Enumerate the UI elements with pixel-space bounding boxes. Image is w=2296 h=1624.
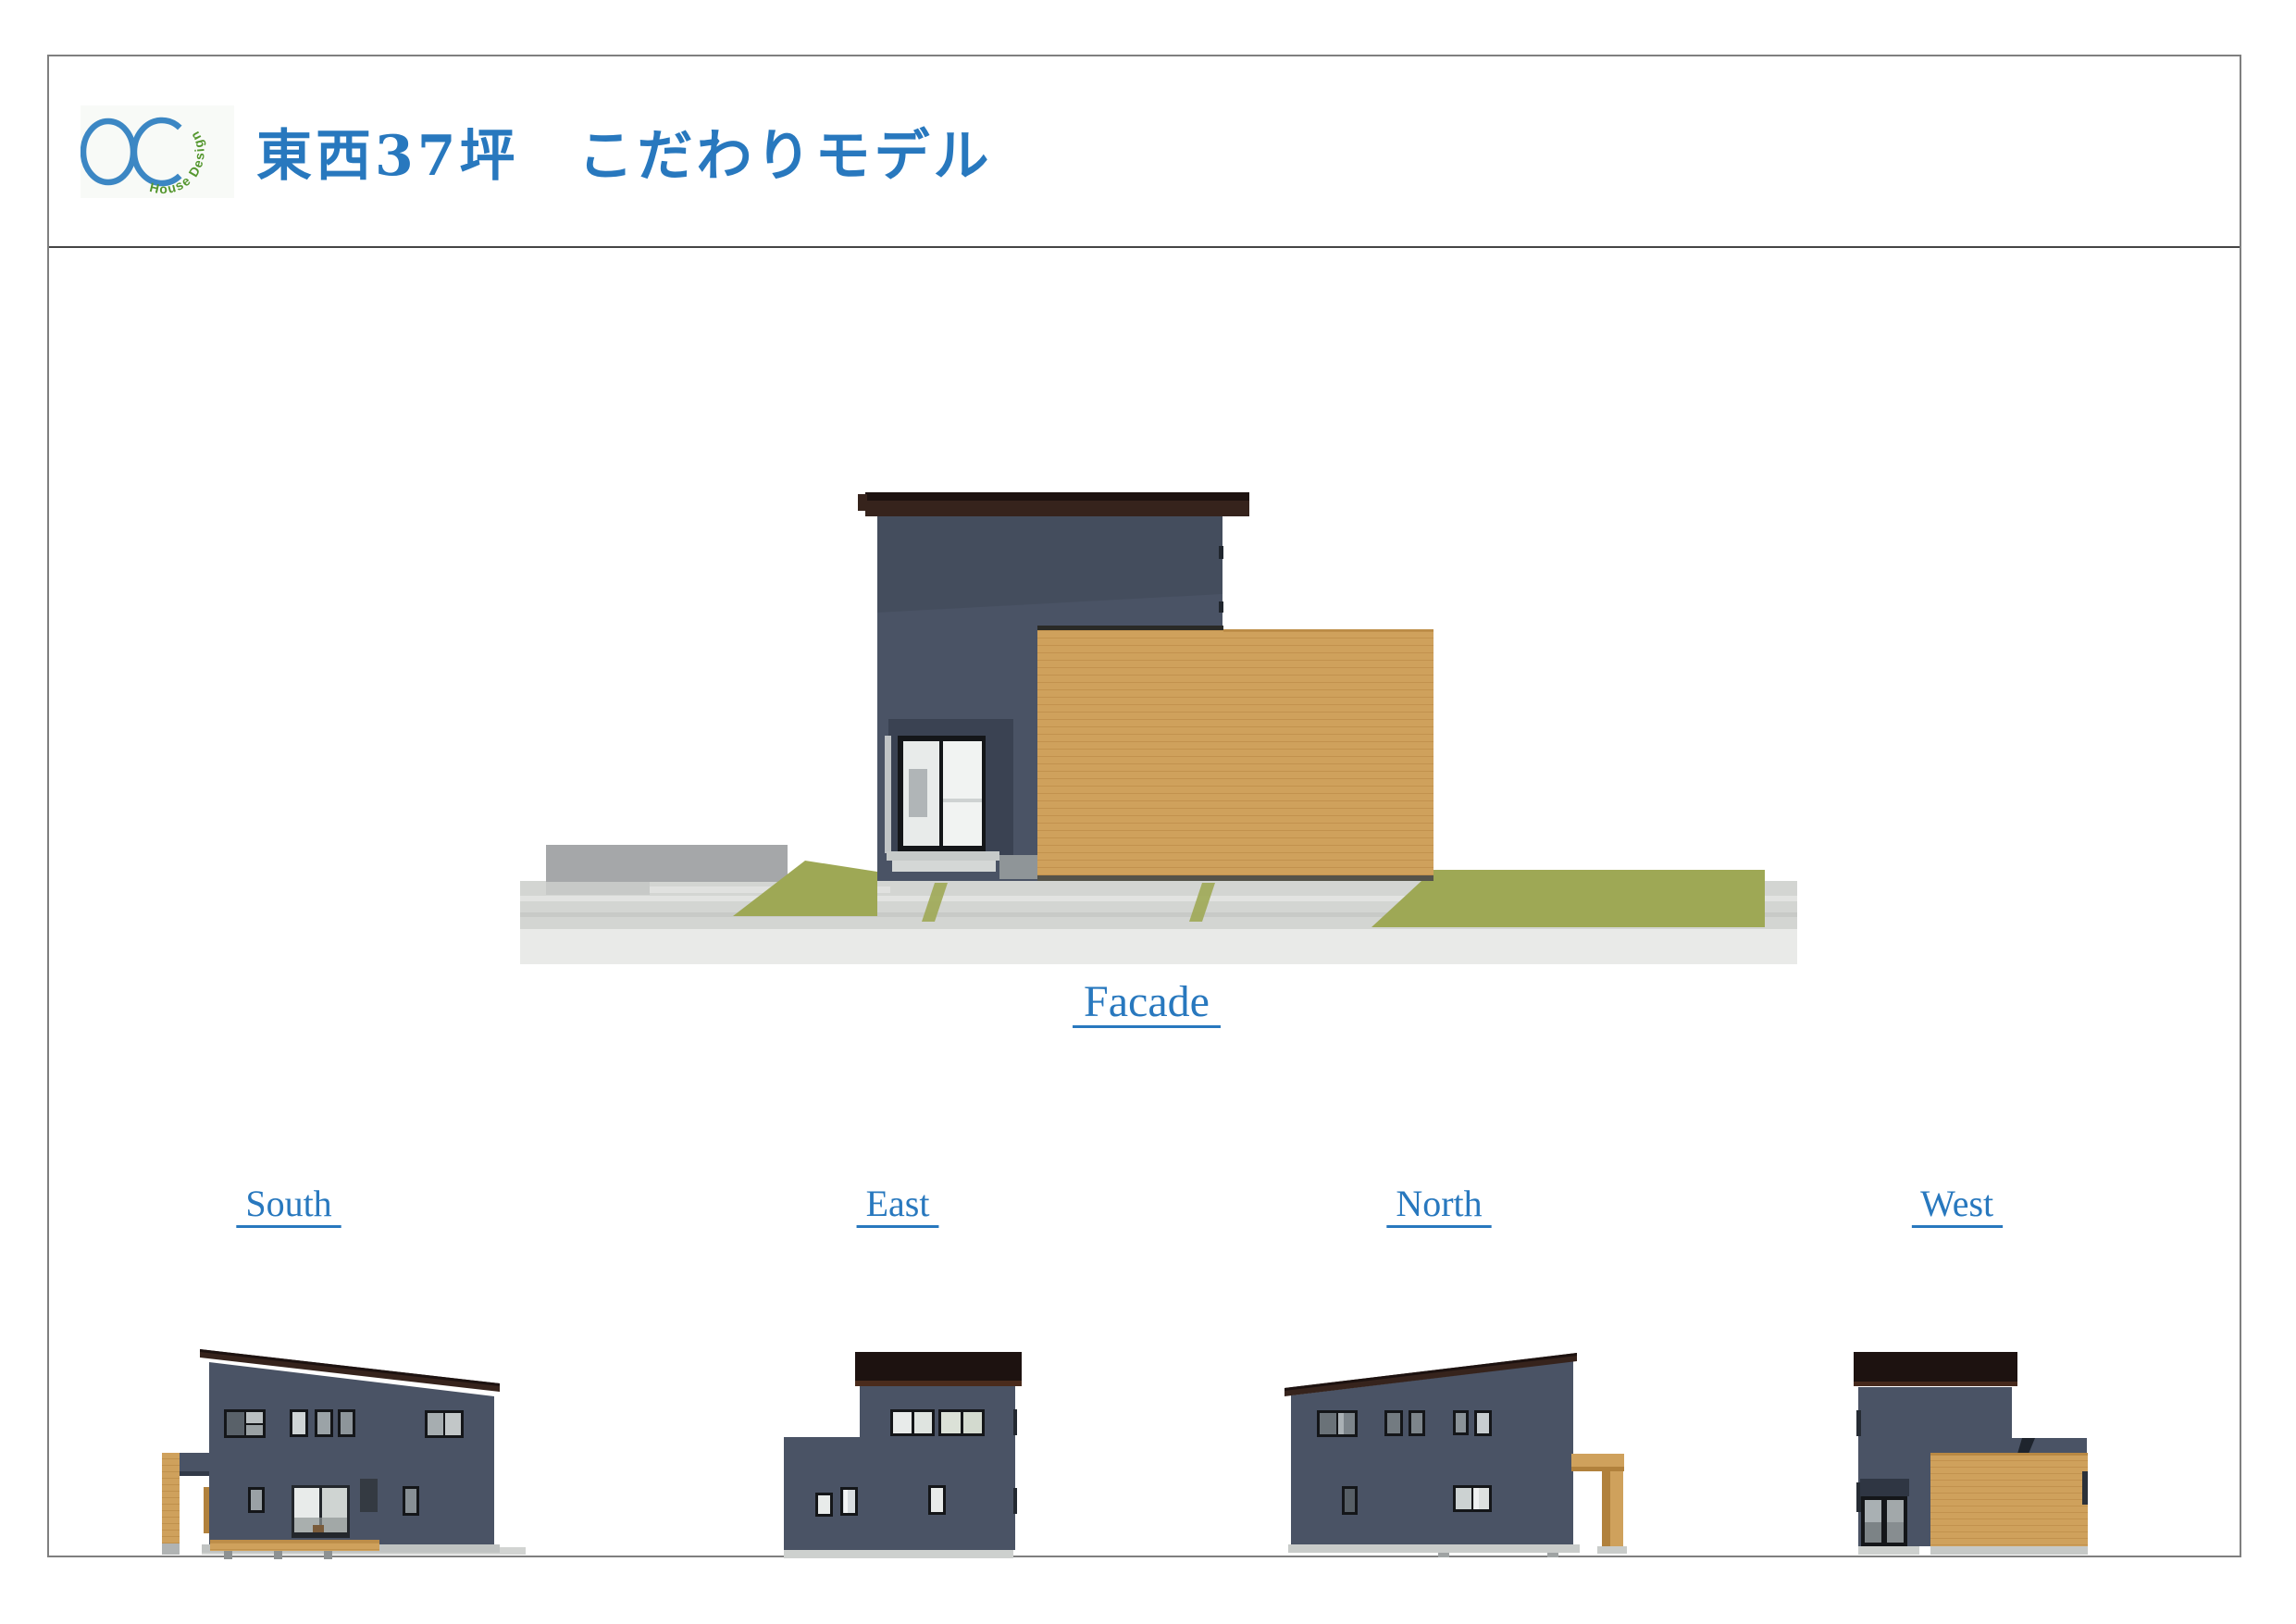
- facade-rendering-image: [520, 483, 1797, 964]
- west-elevation-image: [1843, 1325, 2195, 1559]
- west-label: West: [1912, 1182, 2003, 1225]
- south-elevation-image: [122, 1297, 539, 1559]
- south-label: South: [236, 1182, 341, 1225]
- document-page: House Design 東西37坪 こだわりモデル: [47, 55, 2241, 1557]
- facade-label: Facade: [1073, 976, 1221, 1027]
- east-elevation-image: [784, 1325, 1163, 1559]
- screenshot-root: { "header": { "title": "東西37坪 こだわりモデル", …: [0, 0, 2296, 1624]
- north-label: North: [1386, 1182, 1491, 1225]
- page-title: 東西37坪 こだわりモデル: [256, 111, 993, 192]
- north-elevation-image: [1279, 1325, 1677, 1559]
- east-label: East: [857, 1182, 939, 1225]
- header: House Design 東西37坪 こだわりモデル: [49, 56, 2240, 248]
- company-logo-icon: House Design: [81, 104, 238, 200]
